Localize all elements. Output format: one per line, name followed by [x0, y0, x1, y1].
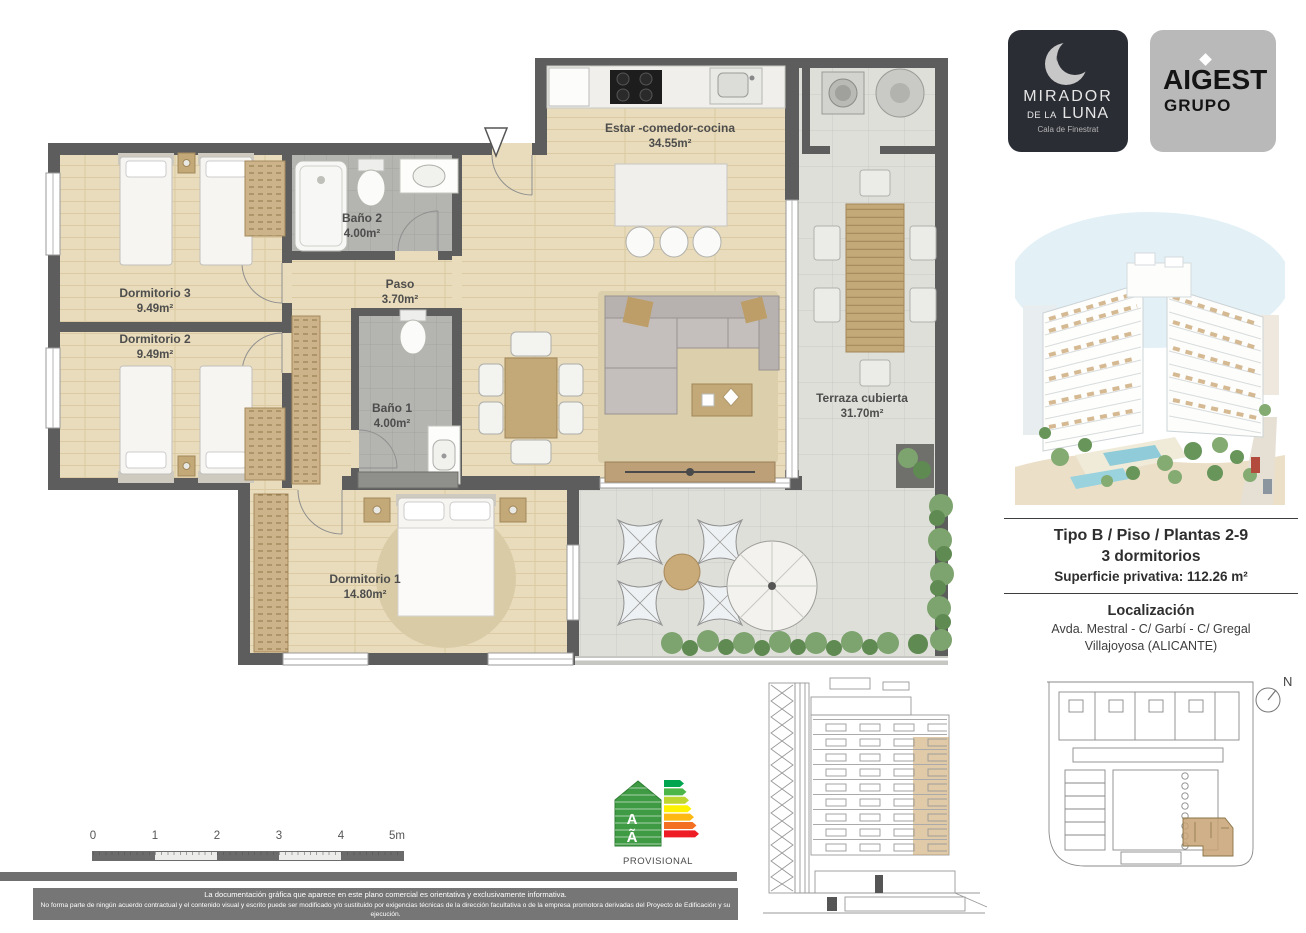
mirador-logo-line1: MIRADOR	[1023, 88, 1113, 106]
info-panel: Tipo B / Piso / Plantas 2-9 3 dormitorio…	[1004, 518, 1298, 653]
north-compass: N	[1256, 674, 1292, 712]
energy-caption: PROVISIONAL	[623, 856, 693, 867]
room-label-dorm2: Dormitorio 2	[119, 332, 191, 346]
room-area-paso: 3.70m²	[382, 294, 419, 306]
aigest-logo-line2: GRUPO	[1164, 96, 1231, 116]
bar-stools	[626, 227, 721, 257]
coffee-table	[692, 384, 752, 416]
divider-line-bottom	[1004, 593, 1298, 594]
kitchen-island	[615, 164, 727, 226]
mirador-logo-line2: DE LA LUNA	[1027, 106, 1109, 122]
terrace-railing	[575, 656, 948, 665]
room-area-estar: 34.55m²	[649, 138, 692, 150]
dining-table	[505, 358, 557, 438]
bedrooms-line: 3 dormitorios	[1004, 548, 1298, 566]
room-label-terraza: Terraza cubierta	[816, 391, 908, 405]
room-area-terraza: 31.70m²	[841, 408, 884, 420]
room-area-bano1: 4.00m²	[374, 418, 411, 430]
fridge	[549, 68, 589, 106]
scale-label-1: 1	[152, 830, 158, 842]
elevation-drawing	[755, 675, 990, 920]
room-label-paso: Paso	[386, 277, 415, 291]
mirador-logo-dela: DE LA	[1027, 110, 1057, 121]
moon-icon	[1039, 38, 1097, 90]
scale-label-3: 3	[276, 830, 282, 842]
scale-label-4: 4	[338, 830, 344, 842]
scale-label-5: 5m	[389, 830, 405, 842]
scale-bar: 0 1 2 3 4 5m	[92, 830, 404, 864]
tv-unit	[605, 462, 775, 482]
site-plan: N	[1025, 670, 1295, 895]
disclaimer-line1: La documentación gráfica que aparece en …	[33, 889, 738, 901]
room-label-bano2: Baño 2	[342, 211, 382, 225]
room-area-dorm1: 14.80m²	[344, 589, 387, 601]
render-left-tower	[1043, 283, 1143, 451]
location-line2: Villajoyosa (ALICANTE)	[1004, 639, 1298, 653]
north-label: N	[1283, 674, 1292, 689]
mirador-logo-subtitle: Cala de Finestrat	[1038, 125, 1099, 134]
side-table	[664, 554, 700, 590]
location-title: Localización	[1004, 603, 1298, 619]
surface-line: Superficie privativa: 112.26 m²	[1004, 569, 1298, 584]
disclaimer-line2: No forma parte de ningún acuerdo contrac…	[33, 901, 738, 920]
scale-label-0: 0	[90, 830, 96, 842]
room-area-dorm2: 9.49m²	[137, 349, 174, 361]
dresser	[358, 472, 458, 488]
room-area-bano2: 4.00m²	[344, 228, 381, 240]
room-label-dorm1: Dormitorio 1	[329, 572, 401, 586]
location-line1: Avda. Mestral - C/ Garbí - C/ Gregal	[1004, 622, 1298, 636]
disclaimer-bar: La documentación gráfica que aparece en …	[33, 888, 738, 920]
room-area-dorm3: 9.49m²	[137, 303, 174, 315]
energy-label: A Ã PROVISIONAL	[612, 776, 704, 868]
room-label-dorm3: Dormitorio 3	[119, 286, 191, 300]
mirador-logo-luna: LUNA	[1062, 105, 1109, 122]
render-car-red	[1251, 457, 1260, 473]
energy-arrows	[664, 780, 699, 837]
scale-label-2: 2	[214, 830, 220, 842]
aigest-logo: AIGEST GRUPO	[1150, 30, 1276, 152]
room-label-estar: Estar -comedor-cocina	[605, 121, 735, 135]
aigest-logo-line1: AIGEST	[1163, 64, 1267, 96]
floor-plan: Estar -comedor-cocina 34.55m² Dormitorio…	[40, 58, 960, 683]
building-render	[1015, 205, 1285, 505]
room-label-bano1: Baño 1	[372, 401, 412, 415]
parasol	[727, 541, 817, 631]
hob	[610, 70, 662, 104]
type-line: Tipo B / Piso / Plantas 2-9	[1004, 527, 1298, 545]
divider-bar	[0, 872, 737, 881]
energy-letter-bottom: Ã	[627, 828, 638, 846]
mirador-logo: MIRADOR DE LA LUNA Cala de Finestrat	[1008, 30, 1128, 152]
energy-letter-top: A	[627, 811, 638, 828]
scale-bar-rule	[92, 851, 404, 861]
render-car-gray	[1263, 479, 1272, 494]
brochure-page: Estar -comedor-cocina 34.55m² Dormitorio…	[0, 0, 1306, 933]
divider-line-top	[1004, 518, 1298, 519]
